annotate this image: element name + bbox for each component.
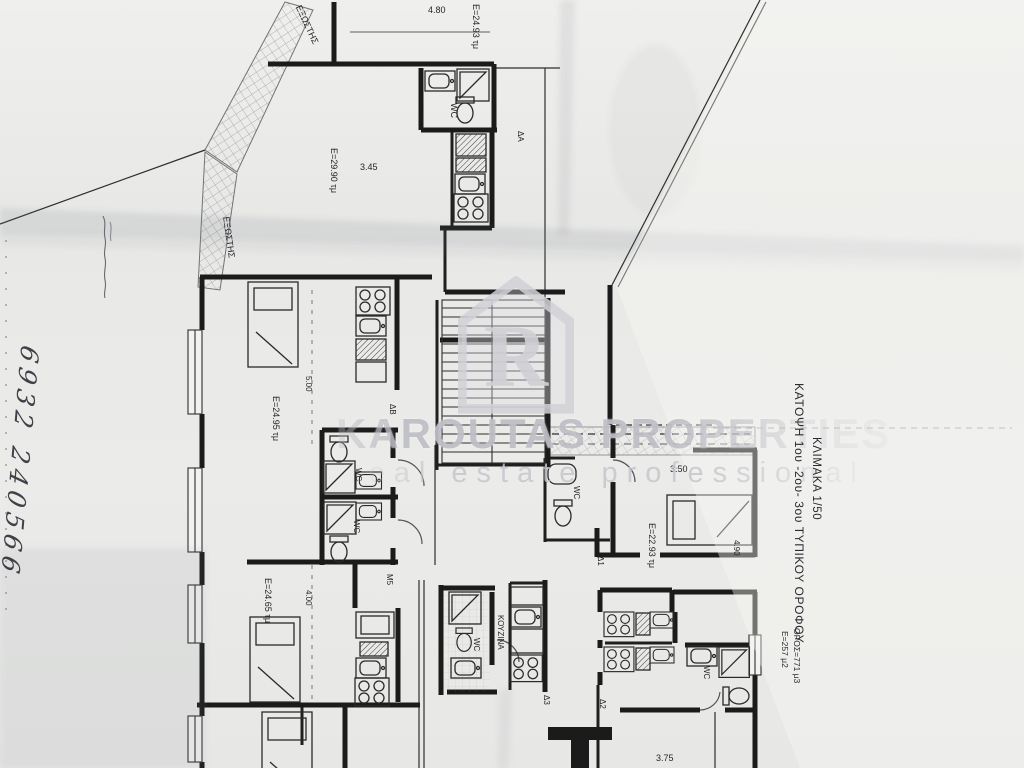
title-block: ΚΑΤΟΨΗ 1ου -2ου- 3ου ΤΥΠΙΚΟΥ ΟΡΟΦΟΥ ΚΛΙΜ…	[0, 0, 1024, 768]
volume-total-note: ΟΡΟΣ=771 μ3	[792, 628, 802, 683]
drawing-title: ΚΑΤΟΨΗ 1ου -2ου- 3ου ΤΥΠΙΚΟΥ ΟΡΟΦΟΥ	[792, 383, 806, 643]
drawing-scale: ΚΛΙΜΑΚΑ 1/50	[810, 437, 822, 520]
scanned-floor-plan-page: ΕΞΩΣΤΗΣ Ε=24.93 τμ 4.80 Ε=29.90 τμ 3.45 …	[0, 0, 1024, 768]
area-total-note: Ε=257 μ2	[780, 631, 790, 668]
